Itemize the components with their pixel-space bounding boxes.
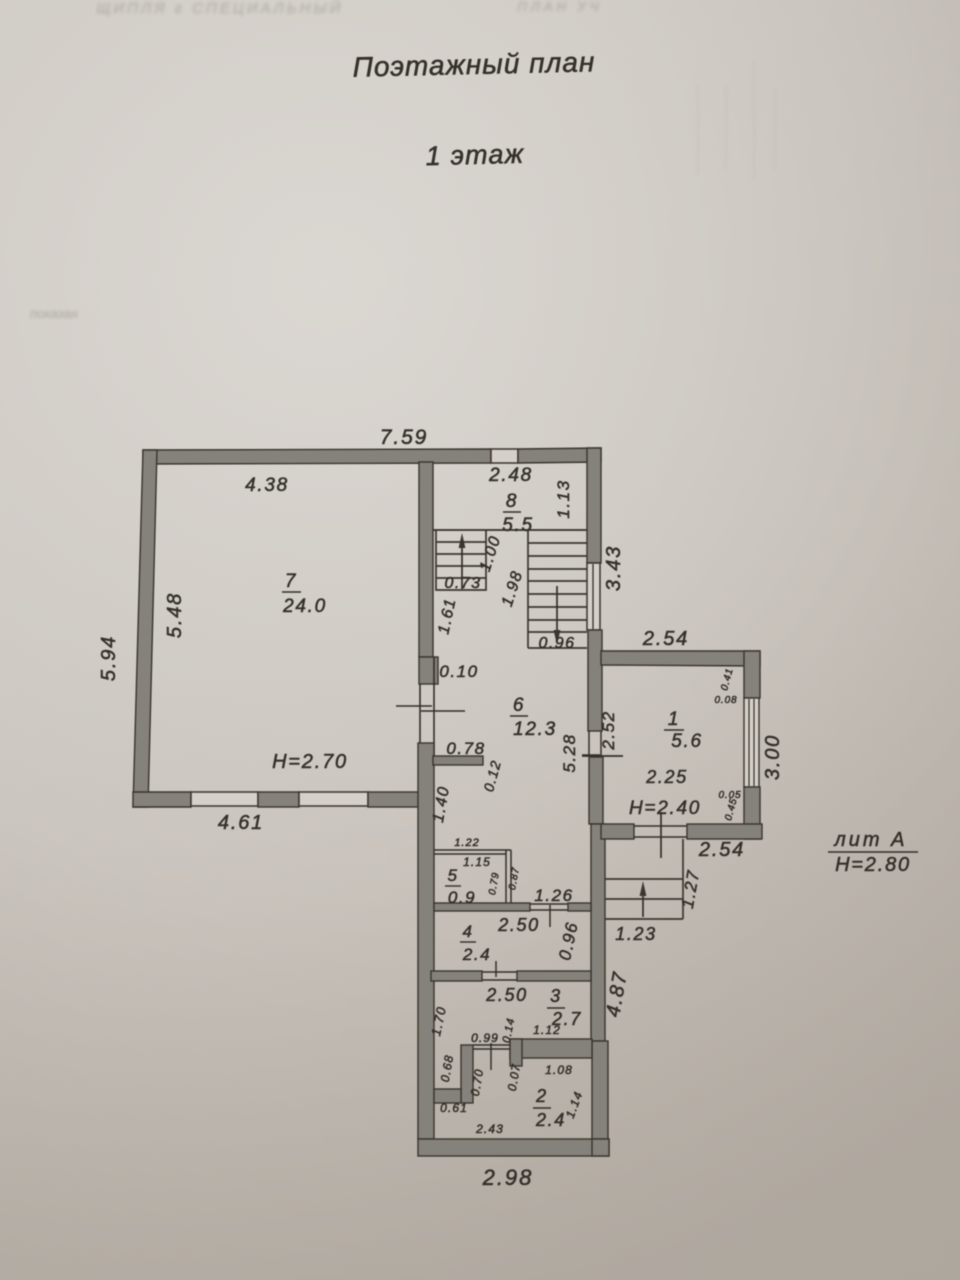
svg-text:2.4: 2.4 [535,1110,566,1130]
svg-text:1.08: 1.08 [545,1063,573,1077]
svg-text:6: 6 [513,695,525,716]
svg-text:2.48: 2.48 [488,465,533,486]
svg-text:0.99: 0.99 [471,1031,499,1045]
svg-text:0.61: 0.61 [440,1101,468,1115]
svg-text:1.98: 1.98 [499,568,527,608]
svg-text:24.0: 24.0 [282,596,327,617]
svg-text:Н=2.80: Н=2.80 [835,854,911,876]
svg-text:8: 8 [506,491,518,512]
svg-text:1.61: 1.61 [435,596,459,636]
svg-text:1.22: 1.22 [454,837,479,849]
svg-text:2.25: 2.25 [645,767,688,787]
svg-text:5.6: 5.6 [671,731,703,752]
svg-text:1.13: 1.13 [554,479,573,518]
svg-text:1.27: 1.27 [678,868,704,910]
svg-text:0.96: 0.96 [539,635,576,652]
svg-text:0.41: 0.41 [719,667,736,692]
svg-text:7: 7 [285,571,297,592]
svg-text:4.38: 4.38 [245,475,289,496]
svg-text:1.12: 1.12 [533,1023,561,1037]
svg-text:4.87: 4.87 [602,969,632,1018]
svg-text:3.43: 3.43 [603,545,625,591]
svg-text:показан: показан [30,306,78,321]
svg-text:Н=2.70: Н=2.70 [272,751,348,773]
svg-text:3.00: 3.00 [762,734,784,780]
svg-text:0.08: 0.08 [714,695,737,706]
svg-text:5.28: 5.28 [560,733,579,772]
svg-text:5.48: 5.48 [164,592,186,638]
svg-text:2.43: 2.43 [475,1122,504,1136]
svg-text:1.23: 1.23 [615,924,657,944]
svg-text:2.98: 2.98 [482,1165,534,1190]
svg-text:0.79: 0.79 [487,871,502,896]
svg-text:5: 5 [448,866,459,885]
svg-text:0.9: 0.9 [448,888,476,907]
svg-text:Н=2.40: Н=2.40 [629,798,701,819]
svg-text:2.4: 2.4 [462,945,491,964]
svg-text:лит А: лит А [834,829,908,851]
svg-text:1.15: 1.15 [463,855,491,869]
svg-text:0.10: 0.10 [439,662,478,681]
svg-text:5.94: 5.94 [98,635,120,681]
svg-text:12.3: 12.3 [513,719,557,740]
svg-text:4.61: 4.61 [218,812,264,834]
svg-text:1.26: 1.26 [534,886,573,905]
svg-text:0.07: 0.07 [505,1062,524,1092]
svg-text:1.00: 1.00 [477,533,505,573]
svg-text:2.52: 2.52 [599,710,618,750]
svg-text:ПЛАН УЧ: ПЛАН УЧ [517,0,602,14]
svg-text:0.68: 0.68 [438,1053,457,1083]
svg-text:3: 3 [550,986,562,1006]
svg-text:2: 2 [535,1086,548,1106]
svg-text:0.96: 0.96 [555,920,582,962]
svg-text:2.54: 2.54 [698,839,745,861]
svg-text:0.78: 0.78 [446,739,485,758]
svg-text:1.14: 1.14 [563,1089,586,1120]
svg-text:0.87: 0.87 [507,866,522,891]
svg-text:0.73: 0.73 [445,575,482,592]
svg-text:1: 1 [668,709,680,730]
svg-text:7.59: 7.59 [380,426,428,449]
svg-text:Поэтажный план: Поэтажный план [352,46,595,82]
svg-text:2.50: 2.50 [485,985,528,1005]
svg-text:2.50: 2.50 [497,915,540,935]
svg-text:0.12: 0.12 [480,758,504,793]
svg-text:5.5: 5.5 [502,515,534,536]
svg-text:2.54: 2.54 [642,628,689,650]
svg-text:4: 4 [463,922,474,941]
svg-text:1 этаж: 1 этаж [425,139,525,172]
svg-text:ЩИПЛЯ г СПЕЦИАЛЬНЫЙ: ЩИПЛЯ г СПЕЦИАЛЬНЫЙ [97,0,344,17]
